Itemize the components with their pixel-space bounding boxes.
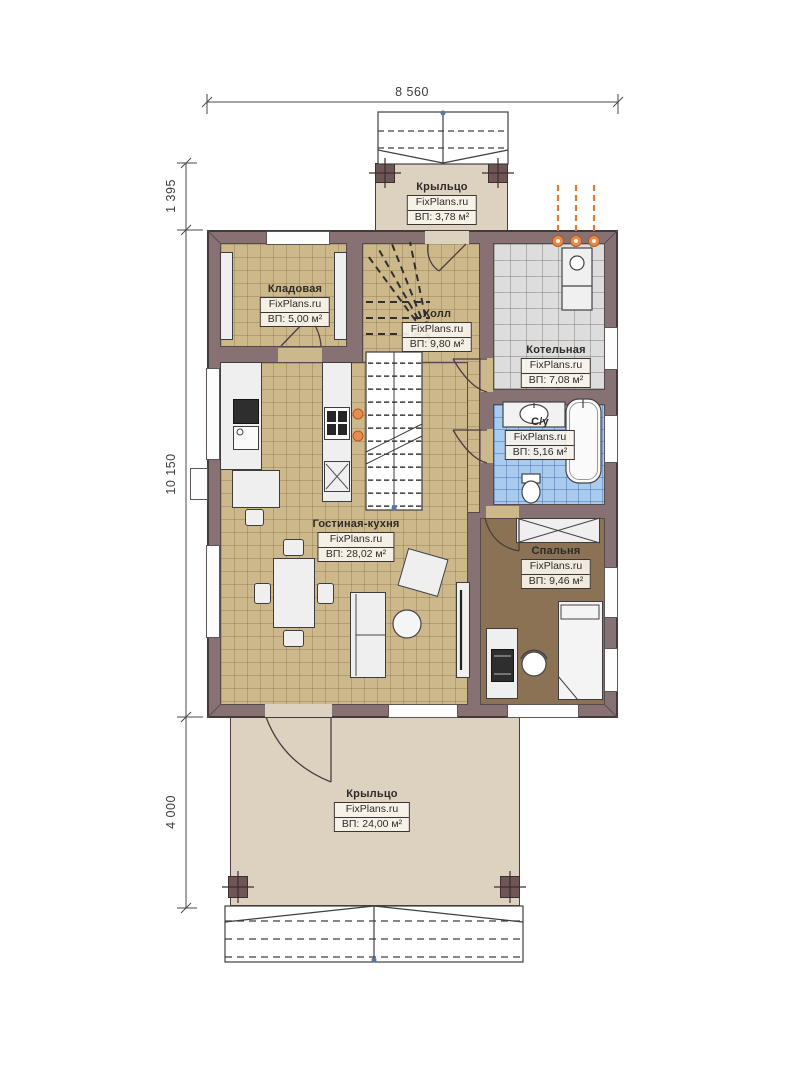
bed	[558, 601, 603, 700]
kitchen-chair	[245, 509, 264, 526]
porch-post	[228, 876, 248, 898]
storage-shelf-right	[334, 252, 347, 340]
window-living-left	[206, 545, 220, 638]
window-living-bottom	[388, 704, 458, 718]
window-boiler	[604, 327, 618, 370]
floor-plan: 8 560 1 395 10 150 4 000 Крыльцо FixPlan…	[0, 0, 792, 1080]
room-name: Гостиная-кухня	[312, 518, 399, 530]
watermark: FixPlans.ru	[408, 196, 476, 211]
room-label-living-kitchen: Гостиная-кухня FixPlans.ru ВП: 28,02 м²	[312, 518, 399, 562]
room-label-boiler: Котельная FixPlans.ru ВП: 7,08 м²	[521, 344, 591, 388]
bedroom-door-opening	[486, 506, 519, 518]
dim-house-depth: 10 150	[164, 453, 178, 494]
room-name: Холл	[402, 308, 472, 320]
watermark: FixPlans.ru	[319, 533, 393, 548]
dining-chair	[317, 583, 334, 604]
watermark: FixPlans.ru	[522, 560, 590, 575]
room-label-bathroom: С/у FixPlans.ru ВП: 5,16 м²	[505, 416, 575, 460]
room-area: ВП: 3,78 м²	[408, 211, 476, 225]
window-storage	[266, 231, 330, 245]
dining-chair	[283, 539, 304, 556]
room-label-porch-top: Крыльцо FixPlans.ru ВП: 3,78 м²	[407, 181, 477, 225]
room-label-hall: Холл FixPlans.ru ВП: 9,80 м²	[402, 308, 472, 352]
watermark: FixPlans.ru	[506, 431, 574, 446]
room-name: Спальня	[521, 545, 591, 557]
porch-post	[500, 876, 520, 898]
watermark: FixPlans.ru	[261, 298, 329, 313]
room-area: ВП: 5,16 м²	[506, 446, 574, 460]
watermark: FixPlans.ru	[335, 803, 409, 818]
watermark: FixPlans.ru	[522, 359, 590, 374]
porch-post	[488, 163, 508, 183]
kitchen-table	[232, 470, 280, 508]
storage-shelf-left	[220, 252, 233, 340]
room-name: Котельная	[521, 344, 591, 356]
dining-chair	[283, 630, 304, 647]
room-name: Крыльцо	[407, 181, 477, 193]
room-label-bedroom: Спальня FixPlans.ru ВП: 9,46 м²	[521, 545, 591, 589]
room-name: С/у	[505, 416, 575, 428]
room-name: Кладовая	[260, 283, 330, 295]
window-bedroom-2	[604, 648, 618, 692]
room-name: Крыльцо	[334, 788, 410, 800]
room-label-storage: Кладовая FixPlans.ru ВП: 5,00 м²	[260, 283, 330, 327]
front-door-opening	[425, 231, 469, 244]
kitchen-cabinet	[324, 461, 350, 492]
room-area: ВП: 24,00 м²	[335, 818, 409, 832]
room-area: ВП: 9,80 м²	[403, 338, 471, 352]
room-area: ВП: 7,08 м²	[522, 374, 590, 388]
boiler-door-opening	[481, 358, 493, 392]
porch-post	[375, 163, 395, 183]
dim-porch-top-depth: 1 395	[164, 179, 178, 213]
kitchen-appliance	[233, 399, 259, 424]
entry-steps-bottom	[225, 906, 523, 963]
storage-door-opening	[278, 348, 322, 362]
dining-chair	[254, 583, 271, 604]
room-area: ВП: 5,00 м²	[261, 313, 329, 327]
window-kitchen	[206, 368, 220, 460]
sofa	[350, 592, 386, 678]
window-bedroom-bottom	[507, 704, 579, 718]
chimney-bracket	[190, 468, 208, 500]
kitchen-sink	[233, 426, 259, 450]
entry-steps-top	[378, 111, 508, 165]
watermark: FixPlans.ru	[403, 323, 471, 338]
dim-top-width: 8 560	[395, 85, 429, 99]
wardrobe	[516, 518, 600, 543]
room-area: ВП: 28,02 м²	[319, 548, 393, 562]
tv-stand	[456, 582, 470, 678]
stove	[324, 407, 350, 440]
bathroom-door-opening	[481, 429, 493, 463]
dim-porch-bottom-depth: 4 000	[164, 795, 178, 829]
computer	[491, 649, 514, 682]
dining-table	[273, 558, 315, 628]
room-area: ВП: 9,46 м²	[522, 575, 590, 589]
window-bathroom	[604, 415, 618, 463]
window-bedroom-1	[604, 567, 618, 618]
porch-door-opening	[265, 704, 332, 717]
room-label-porch-bottom: Крыльцо FixPlans.ru ВП: 24,00 м²	[334, 788, 410, 832]
